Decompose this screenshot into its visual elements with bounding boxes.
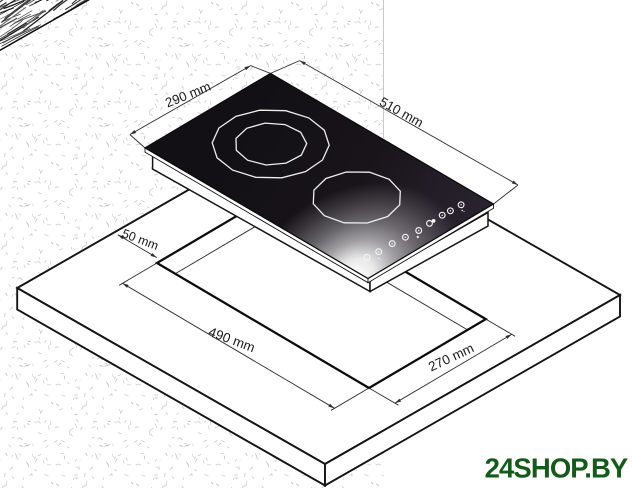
svg-text:24SHOP.BY: 24SHOP.BY bbox=[485, 453, 628, 484]
